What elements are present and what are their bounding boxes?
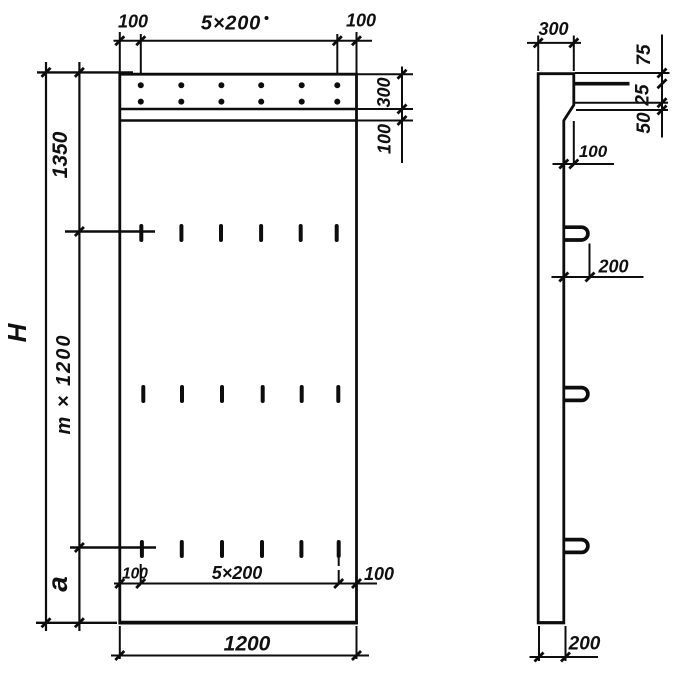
svg-text:a: a [42,576,73,592]
svg-text:300: 300 [538,19,568,39]
svg-text:75: 75 [634,44,655,66]
svg-text:100: 100 [375,124,395,154]
svg-text:5×200: 5×200 [212,563,263,583]
svg-text:100: 100 [122,566,148,583]
svg-text:200: 200 [568,634,601,655]
svg-text:50: 50 [634,112,655,134]
svg-text:200: 200 [597,257,628,277]
svg-text:m × 1200: m × 1200 [53,333,75,434]
svg-text:300: 300 [374,77,394,107]
svg-text:100: 100 [364,564,394,584]
svg-text:5×200: 5×200 [201,13,261,35]
svg-text:25: 25 [633,84,654,107]
svg-text:100: 100 [579,142,608,161]
svg-text:100: 100 [118,12,148,32]
svg-text:100: 100 [346,11,376,31]
svg-text:H: H [2,322,32,342]
svg-text:1200: 1200 [224,633,271,656]
svg-text:1350: 1350 [49,131,72,178]
